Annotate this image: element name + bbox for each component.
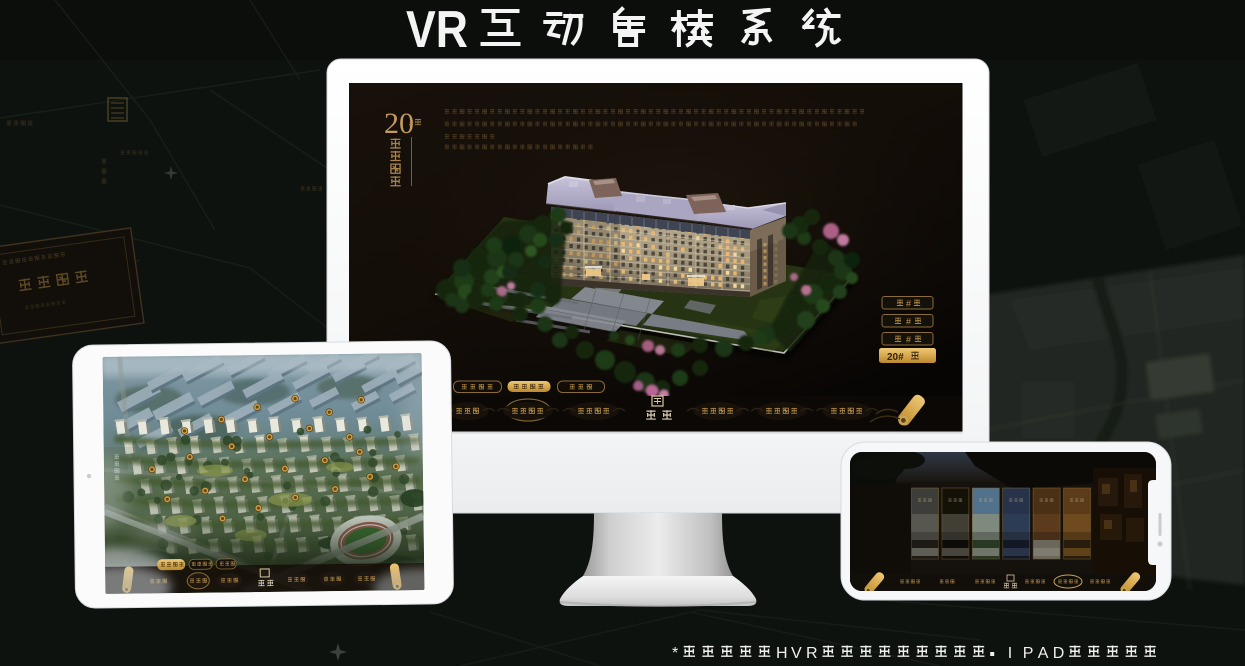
svg-text:H: H [776,645,788,662]
svg-text:D: D [1053,645,1065,662]
svg-text:P: P [1023,645,1034,662]
svg-text:#: # [906,299,911,309]
svg-text:#: # [409,119,414,128]
svg-text:*: * [672,645,678,662]
svg-text:#: # [906,317,911,327]
svg-text:#: # [906,335,911,345]
svg-text:V: V [791,645,802,662]
svg-text:R: R [806,645,818,662]
svg-text:VR: VR [406,1,468,59]
svg-text:A: A [1038,645,1049,662]
svg-text:20#: 20# [887,352,904,363]
svg-text:I: I [1008,645,1012,662]
